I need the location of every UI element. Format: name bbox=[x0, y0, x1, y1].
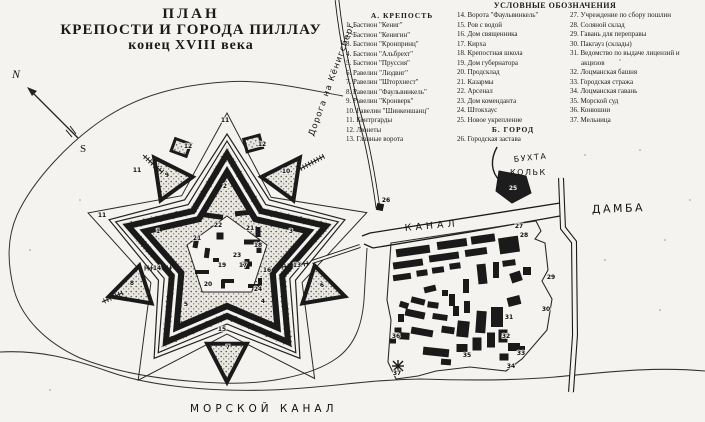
map-number: 33 bbox=[517, 350, 525, 357]
map-number: 21 bbox=[246, 225, 254, 232]
map-title: ПЛАН КРЕПОСТИ И ГОРОДА ПИЛЛАУ конец XVII… bbox=[56, 6, 326, 54]
map-number: 34 bbox=[507, 363, 515, 370]
map-number: 20 bbox=[204, 281, 212, 288]
map-number: 37 bbox=[393, 370, 401, 377]
legend-item: 16. Дом священника bbox=[457, 30, 569, 40]
legend-item: 1. Бастион "Кениг" bbox=[346, 21, 458, 31]
map-number: 13 bbox=[293, 262, 301, 269]
legend-section-b: Б. ГОРОД bbox=[457, 125, 569, 135]
map-number: 10 bbox=[282, 168, 290, 175]
map-number: 12 bbox=[184, 143, 192, 150]
map-number: 12 bbox=[258, 141, 266, 148]
legend-item: 35. Морской суд bbox=[570, 97, 703, 107]
legend-item: 22. Арсенал bbox=[457, 87, 569, 97]
legend-item: 13. Главные ворота bbox=[346, 135, 458, 145]
legend-item: 18. Крепостная школа bbox=[457, 49, 569, 59]
map-number: 11 bbox=[98, 212, 106, 219]
legend-item: 11. Контргарды bbox=[346, 116, 458, 126]
legend-item: 6. Равелин "Людвиг" bbox=[346, 69, 458, 79]
legend-item: 5. Бастион "Пруссия" bbox=[346, 59, 458, 69]
legend-item: 20. Продсклад bbox=[457, 68, 569, 78]
legend-item: 31. Ведомство по выдаче лицензий и акциз… bbox=[570, 49, 703, 68]
legend-list-1: 1. Бастион "Кениг"2. Бастион "Кенигин"3.… bbox=[346, 21, 458, 145]
map-number: 5 bbox=[184, 301, 188, 308]
canal-label: КАНАЛ bbox=[404, 218, 459, 234]
map-number: 4 bbox=[261, 298, 265, 305]
map-number: 27 bbox=[515, 223, 523, 230]
map-number: 8 bbox=[130, 280, 134, 287]
legend-item: 33. Городская стража bbox=[570, 78, 703, 88]
legend-list-3: 27. Учреждение по сбору пошлин28. Соляно… bbox=[570, 11, 703, 125]
map-number: 36 bbox=[392, 333, 400, 340]
map-number: 23 bbox=[233, 252, 241, 259]
sea-canal-label: МОРСКОЙ КАНАЛ bbox=[190, 402, 338, 415]
bay-label-1: БУХТА bbox=[513, 152, 547, 164]
legend-item: 4. Бастион "Альбрехт" bbox=[346, 50, 458, 60]
map-number: 35 bbox=[463, 352, 471, 359]
legend-column-middle: 14. Ворота "Фаульвинкель"15. Ров с водой… bbox=[457, 11, 569, 145]
legend-item: 10. Равелин "Шинкеншанц" bbox=[346, 107, 458, 117]
map-number: 6 bbox=[320, 282, 324, 289]
map-number: 29 bbox=[547, 274, 555, 281]
map-number-light: 25 bbox=[509, 185, 517, 192]
scanned-map-page: NSКАНАЛДАМБАБУХТАКОЛЬКМОРСКОЙ КАНАЛДорог… bbox=[0, 0, 705, 422]
legend-item: 29. Гавань для переправы bbox=[570, 30, 703, 40]
map-number: 11 bbox=[221, 117, 229, 124]
title-line-2: КРЕПОСТИ И ГОРОДА ПИЛЛАУ bbox=[56, 22, 326, 38]
legend-list-2a: 14. Ворота "Фаульвинкель"15. Ров с водой… bbox=[457, 11, 569, 125]
map-number: 7 bbox=[226, 344, 230, 351]
legend-item: 26. Городская застава bbox=[457, 135, 569, 145]
legend-item: 24. Штокхаус bbox=[457, 106, 569, 116]
legend-item: 9. Равелин "Кронверк" bbox=[346, 97, 458, 107]
title-line-1: ПЛАН bbox=[56, 6, 326, 22]
map-number: 11 bbox=[133, 167, 141, 174]
map-number: 32 bbox=[502, 333, 510, 340]
legend-list-2b: 26. Городская застава bbox=[457, 135, 569, 145]
compass-s-label: S bbox=[80, 143, 86, 155]
legend-item: 3. Бастион "Кронпринц" bbox=[346, 40, 458, 50]
legend-item: 17. Кирха bbox=[457, 40, 569, 50]
map-number: 15 bbox=[218, 326, 226, 333]
legend-item: 7. Равелин "Шторхнест" bbox=[346, 78, 458, 88]
legend-item: 23. Дом коменданта bbox=[457, 97, 569, 107]
legend-item: 2. Бастион "Кенигин" bbox=[346, 31, 458, 41]
map-number: 24 bbox=[254, 286, 262, 293]
legend-item: 21. Казармы bbox=[457, 78, 569, 88]
map-number: 19 bbox=[218, 262, 226, 269]
bay-label-2: КОЛЬК bbox=[510, 168, 547, 177]
legend-item: 8. Равелин "Фаульвинкель" bbox=[346, 88, 458, 98]
map-number: 22 bbox=[214, 222, 222, 229]
map-number: 28 bbox=[520, 232, 528, 239]
legend-item: 14. Ворота "Фаульвинкель" bbox=[457, 11, 569, 21]
legend-item: 15. Ров с водой bbox=[457, 21, 569, 31]
map-number: 16 bbox=[263, 267, 271, 274]
map-number: 30 bbox=[542, 306, 550, 313]
legend-item: 12. Люнеты bbox=[346, 126, 458, 136]
legend-section-a: А. КРЕПОСТЬ bbox=[346, 11, 458, 21]
dam-label: ДАМБА bbox=[592, 201, 646, 216]
legend-item: 27. Учреждение по сбору пошлин bbox=[570, 11, 703, 21]
legend-item: 36. Конюшни bbox=[570, 106, 703, 116]
legend-item: 28. Соляной склад bbox=[570, 21, 703, 31]
legend-item: 30. Пакгауз (склады) bbox=[570, 40, 703, 50]
map-number: 1 bbox=[156, 228, 160, 235]
legend-item: 32. Лоцманская башня bbox=[570, 68, 703, 78]
legend-item: 34. Лоцманская гавань bbox=[570, 87, 703, 97]
compass-n-label: N bbox=[11, 67, 21, 81]
legend-item: 19. Дом губернатора bbox=[457, 59, 569, 69]
map-number: 2 bbox=[223, 183, 227, 190]
map-number: 18 bbox=[254, 242, 262, 249]
legend-item: 37. Мельница bbox=[570, 116, 703, 126]
map-number: 31 bbox=[505, 314, 513, 321]
map-number: 14 bbox=[153, 265, 161, 272]
map-number: 9 bbox=[165, 172, 169, 179]
legend-header: УСЛОВНЫЕ ОБОЗНАЧЕНИЯ bbox=[450, 1, 660, 10]
map-number: 3 bbox=[289, 228, 293, 235]
legend-column-fortress: А. КРЕПОСТЬ 1. Бастион "Кениг"2. Бастион… bbox=[346, 11, 458, 145]
map-number: 21 bbox=[193, 235, 201, 242]
title-line-3: конец XVIII века bbox=[56, 38, 326, 54]
legend-item: 25. Новое укрепление bbox=[457, 116, 569, 126]
map-number: 26 bbox=[382, 197, 390, 204]
map-number: 17 bbox=[239, 262, 247, 269]
legend-column-city: 27. Учреждение по сбору пошлин28. Соляно… bbox=[570, 11, 703, 125]
